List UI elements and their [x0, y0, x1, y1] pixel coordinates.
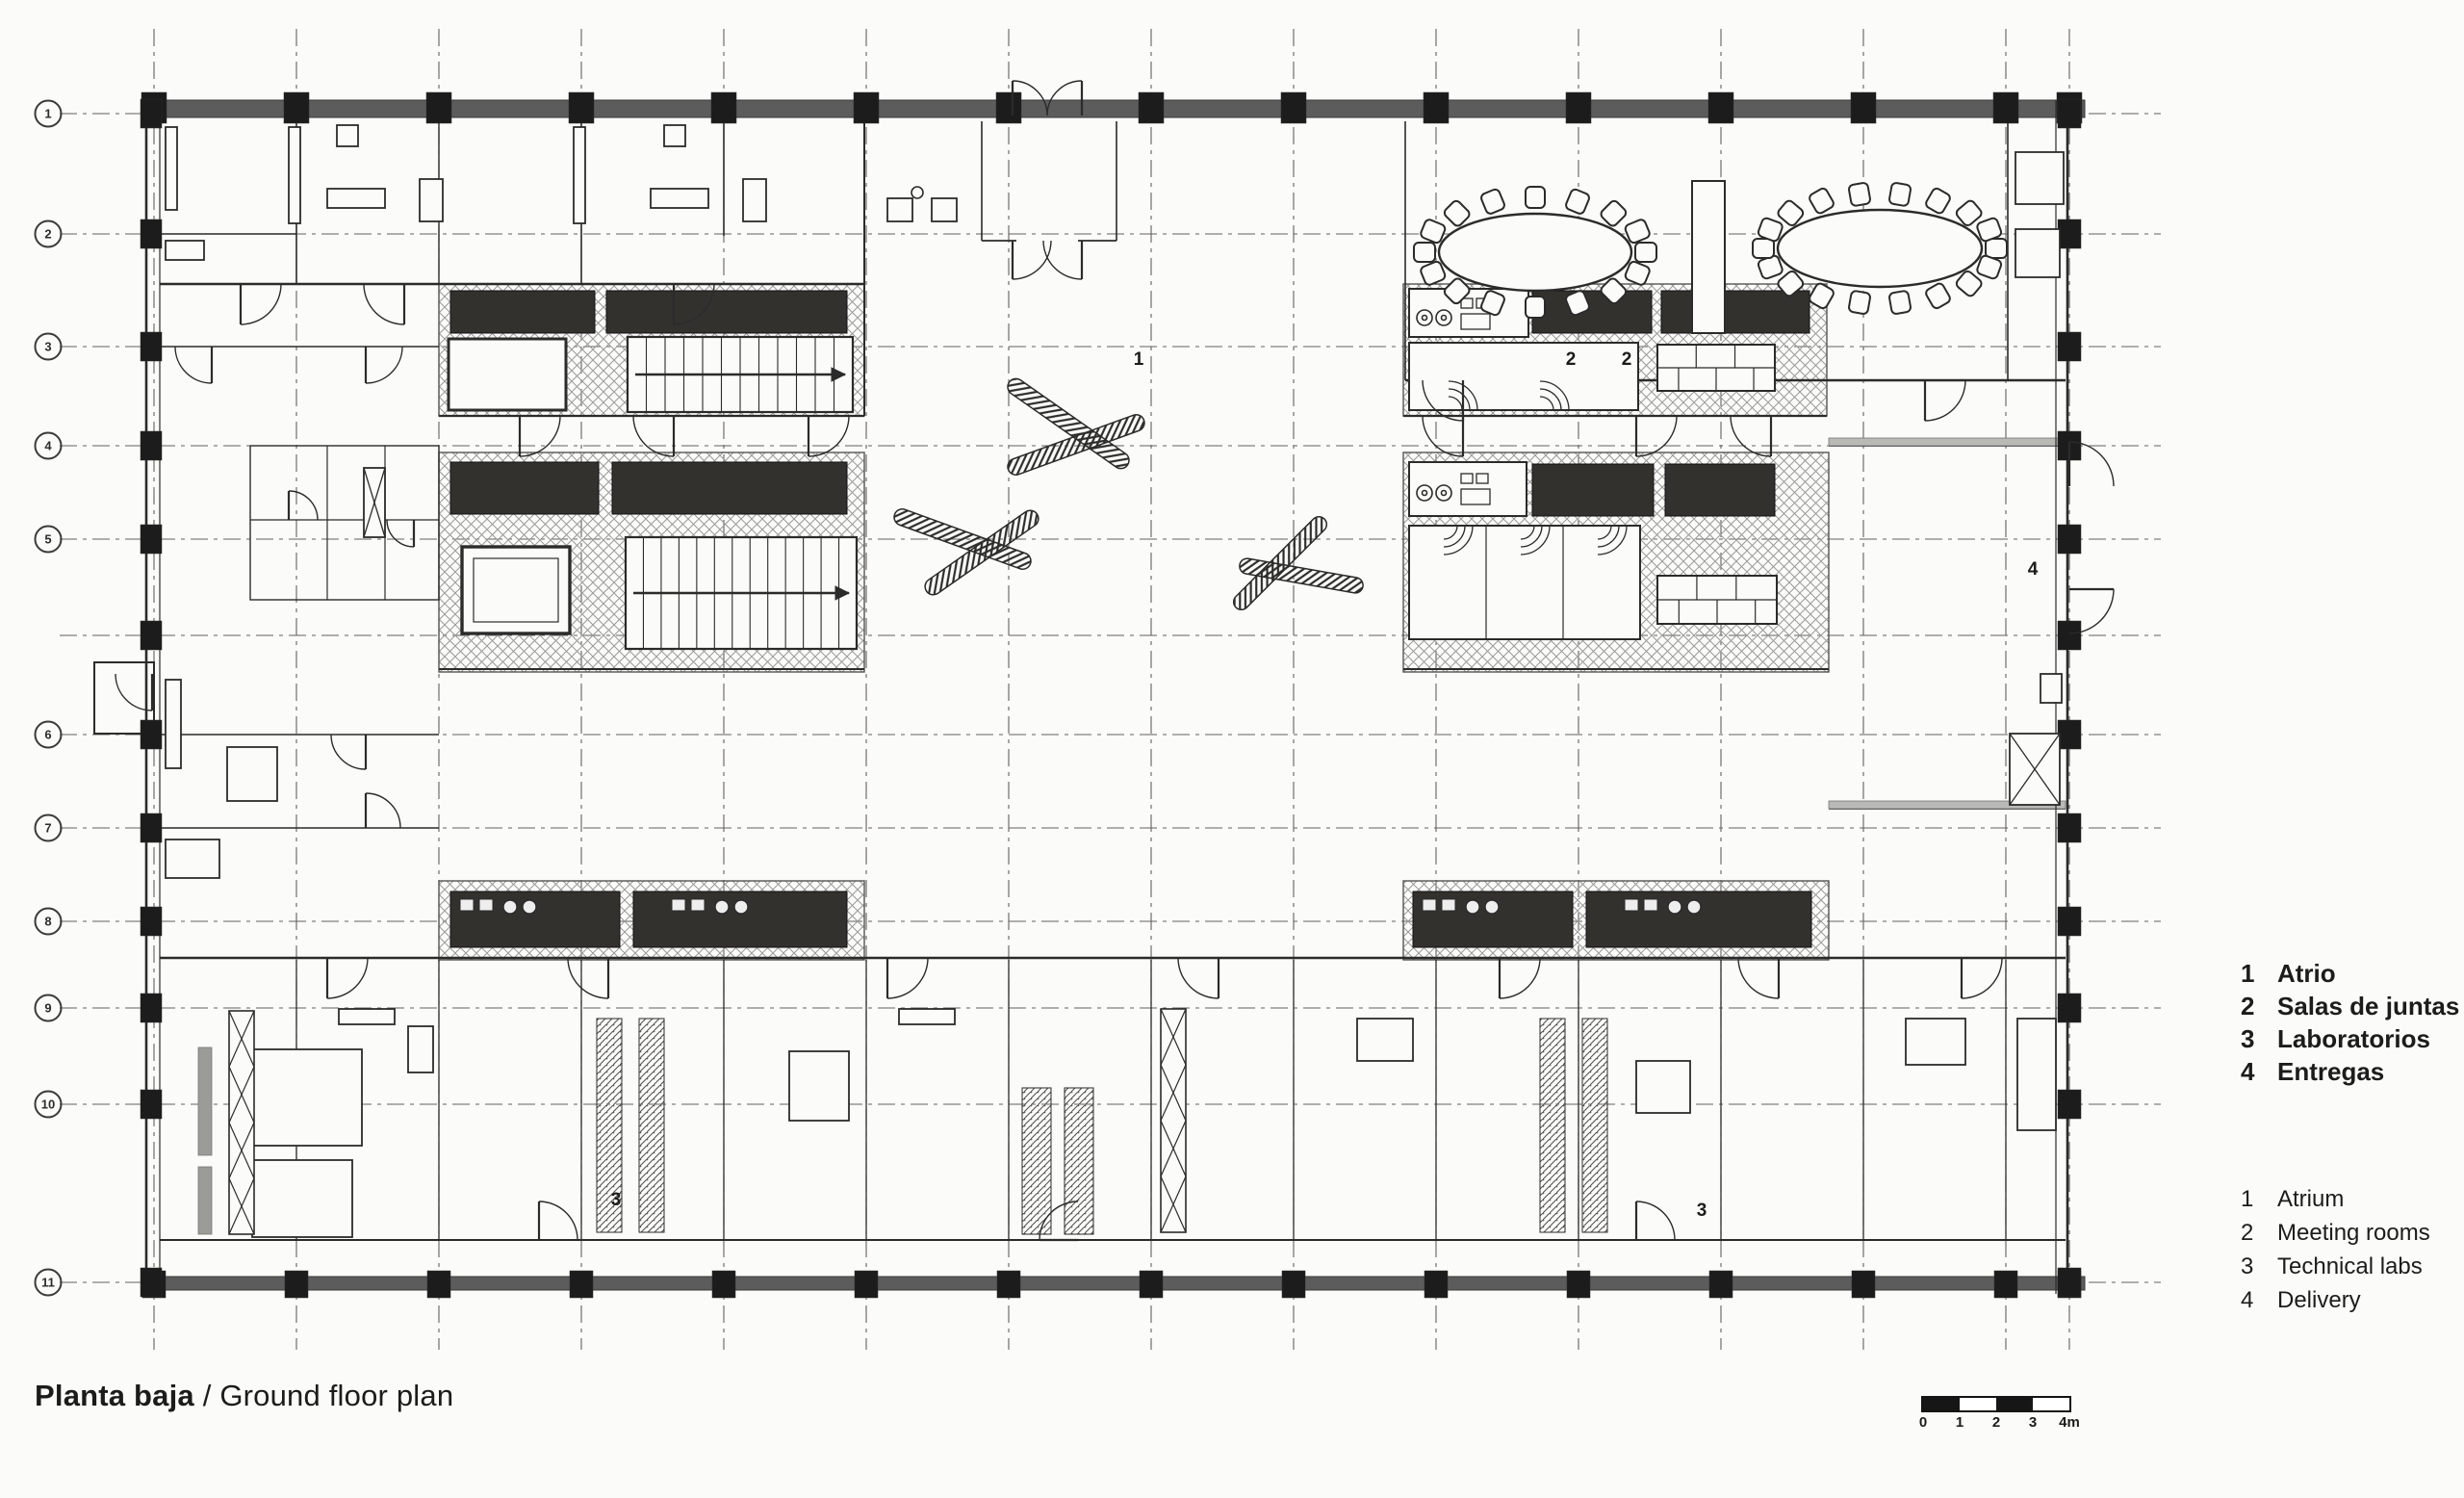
floor-plan-drawing	[0, 0, 2464, 1498]
title-separator: /	[194, 1379, 219, 1412]
grid-bubble: 6	[35, 721, 63, 749]
zone-label-meeting-b: 2	[1622, 349, 1632, 371]
legend-label: Salas de juntas	[2277, 990, 2459, 1022]
legend-number: 2	[2241, 990, 2277, 1022]
scale-bar: 01234m	[1921, 1396, 2075, 1412]
scale-tick-label: 4m	[2059, 1414, 2080, 1431]
legend-spanish: 1Atrio2Salas de juntas3Laboratorios4Entr…	[2241, 957, 2459, 1088]
legend-number: 1	[2241, 1182, 2277, 1216]
legend-row: 4Entregas	[2241, 1055, 2459, 1088]
legend-row: 4Delivery	[2241, 1283, 2430, 1317]
grid-bubble: 8	[35, 908, 63, 936]
legend-number: 3	[2241, 1250, 2277, 1283]
sheet-title-english: Ground floor plan	[219, 1379, 453, 1412]
scale-tick-label: 0	[1919, 1414, 1927, 1431]
grid-bubble: 11	[35, 1269, 63, 1297]
grid-bubble: 7	[35, 814, 63, 842]
grid-bubble: 2	[35, 220, 63, 248]
zone-label-delivery: 4	[2028, 559, 2039, 581]
legend-label: Delivery	[2277, 1283, 2361, 1317]
grid-bubble: 5	[35, 526, 63, 554]
legend-english: 1Atrium2Meeting rooms3Technical labs4Del…	[2241, 1182, 2430, 1317]
scale-tick-label: 1	[1956, 1414, 1963, 1431]
floor-plan-sheet: 1234567891011 1 2 2 3 3 4 Planta baja / …	[0, 0, 2464, 1498]
zone-label-meeting-a: 2	[1566, 349, 1577, 371]
legend-number: 3	[2241, 1022, 2277, 1055]
scale-segment	[1996, 1398, 2033, 1410]
legend-number: 4	[2241, 1283, 2277, 1317]
legend-row: 1Atrium	[2241, 1182, 2430, 1216]
scale-segment	[2033, 1398, 2069, 1410]
grid-bubble: 10	[35, 1091, 63, 1119]
legend-row: 2Salas de juntas	[2241, 990, 2459, 1022]
zone-label-labs-left: 3	[611, 1190, 622, 1211]
grid-bubble: 9	[35, 994, 63, 1022]
legend-label: Entregas	[2277, 1055, 2384, 1088]
legend-row: 2Meeting rooms	[2241, 1216, 2430, 1250]
grid-bubble: 4	[35, 432, 63, 460]
zone-label-labs-right: 3	[1697, 1201, 1707, 1222]
sheet-title: Planta baja / Ground floor plan	[35, 1379, 453, 1413]
zone-label-atrium: 1	[1134, 349, 1144, 371]
legend-number: 4	[2241, 1055, 2277, 1088]
legend-row: 3Laboratorios	[2241, 1022, 2459, 1055]
scale-bar-segments	[1921, 1396, 2071, 1412]
grid-bubble: 1	[35, 100, 63, 128]
legend-number: 1	[2241, 957, 2277, 990]
legend-label: Laboratorios	[2277, 1022, 2430, 1055]
scale-segment	[1923, 1398, 1960, 1410]
scale-tick-label: 3	[2029, 1414, 2037, 1431]
scale-segment	[1960, 1398, 1996, 1410]
grid-bubble: 3	[35, 333, 63, 361]
legend-row: 1Atrio	[2241, 957, 2459, 990]
legend-label: Meeting rooms	[2277, 1216, 2430, 1250]
legend-label: Atrio	[2277, 957, 2336, 990]
legend-label: Technical labs	[2277, 1250, 2423, 1283]
sheet-title-spanish: Planta baja	[35, 1379, 194, 1412]
scale-tick-label: 2	[1992, 1414, 2000, 1431]
legend-number: 2	[2241, 1216, 2277, 1250]
legend-label: Atrium	[2277, 1182, 2344, 1216]
legend-row: 3Technical labs	[2241, 1250, 2430, 1283]
